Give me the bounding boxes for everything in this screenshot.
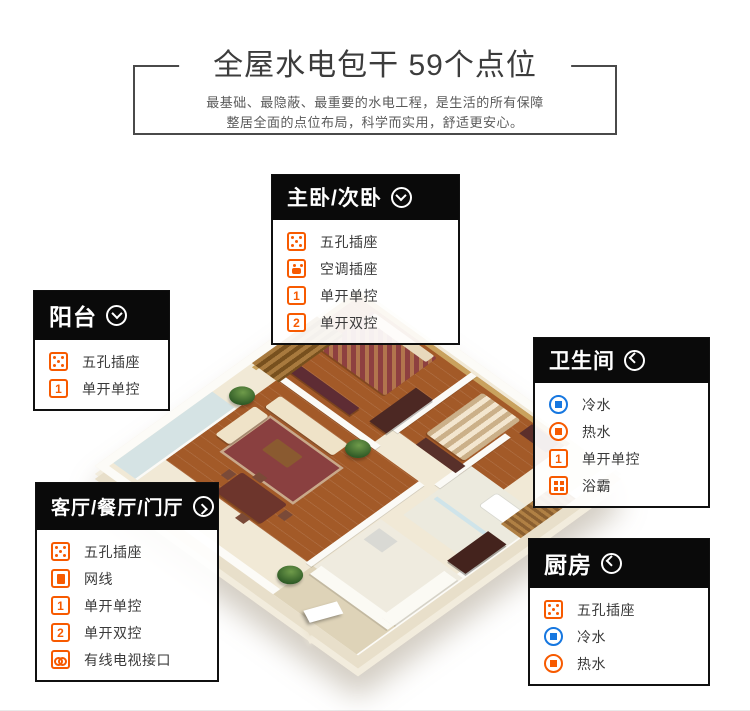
page-title: 全屋水电包干 59个点位 [179,48,571,84]
cold-water-icon [544,627,563,646]
point-label: 单开双控 [320,313,378,333]
panel-title: 客厅/餐厅/门厅 [51,493,184,520]
point-row: 2 单开双控 [287,309,450,336]
socket-5hole-icon [287,232,306,251]
subtitle-line-2: 整居全面的点位布局，科学而实用，舒适更安心。 [0,112,750,131]
point-row: 热水 [544,650,700,677]
ethernet-icon [51,569,70,588]
chevron-down-circle-icon [391,187,412,208]
point-row: 冷水 [549,391,700,418]
point-row: 浴霸 [549,472,700,499]
point-label: 空调插座 [320,259,378,279]
point-row: 网线 [51,565,209,592]
point-label: 热水 [582,422,611,442]
panel-kitchen-header[interactable]: 厨房 [529,539,709,588]
socket-ac-icon [287,259,306,278]
socket-5hole-icon [49,352,68,371]
point-row: 五孔插座 [51,538,209,565]
point-row: 热水 [549,418,700,445]
point-label: 浴霸 [582,476,611,496]
point-label: 有线电视接口 [84,650,171,670]
point-label: 热水 [577,654,606,674]
subtitle-line-1: 最基础、最隐蔽、最重要的水电工程，是生活的所有保障 [0,92,750,111]
chevron-down-circle-icon [106,305,127,326]
point-row: 1 单开单控 [549,445,700,472]
point-label: 单开单控 [84,596,142,616]
hot-water-icon [544,654,563,673]
panel-kitchen: 厨房 五孔插座 冷水 热水 [528,538,710,686]
point-row: 有线电视接口 [51,646,209,673]
cable-tv-icon [51,650,70,669]
header: 全屋水电包干 59个点位 最基础、最隐蔽、最重要的水电工程，是生活的所有保障 整… [0,0,750,160]
panel-title: 主卧/次卧 [287,182,382,212]
socket-5hole-icon [51,542,70,561]
point-label: 网线 [84,569,113,589]
point-row: 1 单开单控 [51,592,209,619]
switch-single-icon: 1 [51,596,70,615]
panel-bathroom: 卫生间 冷水 热水 1 单开单控 浴霸 [533,337,710,508]
point-label: 冷水 [577,627,606,647]
panel-living-header[interactable]: 客厅/餐厅/门厅 [36,483,218,530]
chevron-left-circle-icon [624,350,645,371]
point-row: 冷水 [544,623,700,650]
chevron-right-circle-icon [193,496,214,517]
panel-title: 卫生间 [549,345,615,375]
chevron-left-circle-icon [601,553,622,574]
cold-water-icon [549,395,568,414]
point-label: 冷水 [582,395,611,415]
point-row: 2 单开双控 [51,619,209,646]
switch-double-icon: 2 [51,623,70,642]
panel-bathroom-header[interactable]: 卫生间 [534,338,709,383]
promo-page: 全屋水电包干 59个点位 最基础、最隐蔽、最重要的水电工程，是生活的所有保障 整… [0,0,750,711]
panel-balcony: 阳台 五孔插座 1 单开单控 [33,290,170,411]
switch-double-icon: 2 [287,313,306,332]
point-row: 五孔插座 [49,348,160,375]
switch-single-icon: 1 [49,379,68,398]
socket-5hole-icon [544,600,563,619]
point-row: 五孔插座 [287,228,450,255]
point-label: 单开单控 [320,286,378,306]
point-row: 1 单开单控 [49,375,160,402]
panel-balcony-header[interactable]: 阳台 [34,291,169,340]
point-row: 五孔插座 [544,596,700,623]
point-row: 1 单开单控 [287,282,450,309]
point-label: 五孔插座 [577,600,635,620]
panel-living-dining-foyer: 客厅/餐厅/门厅 五孔插座 网线 1 单开单控 2 单开双控 有线电视接口 [35,482,219,682]
switch-single-icon: 1 [549,449,568,468]
panel-master-bedroom: 主卧/次卧 五孔插座 空调插座 1 单开单控 2 单开双控 [271,174,460,345]
panel-title: 阳台 [49,298,97,332]
bath-heater-icon [549,476,568,495]
point-label: 五孔插座 [320,232,378,252]
panel-master-bedroom-header[interactable]: 主卧/次卧 [272,175,459,220]
point-label: 单开单控 [582,449,640,469]
point-label: 单开双控 [84,623,142,643]
point-label: 五孔插座 [82,352,140,372]
point-row: 空调插座 [287,255,450,282]
point-label: 五孔插座 [84,542,142,562]
switch-single-icon: 1 [287,286,306,305]
point-label: 单开单控 [82,379,140,399]
hot-water-icon [549,422,568,441]
panel-title: 厨房 [544,546,592,580]
